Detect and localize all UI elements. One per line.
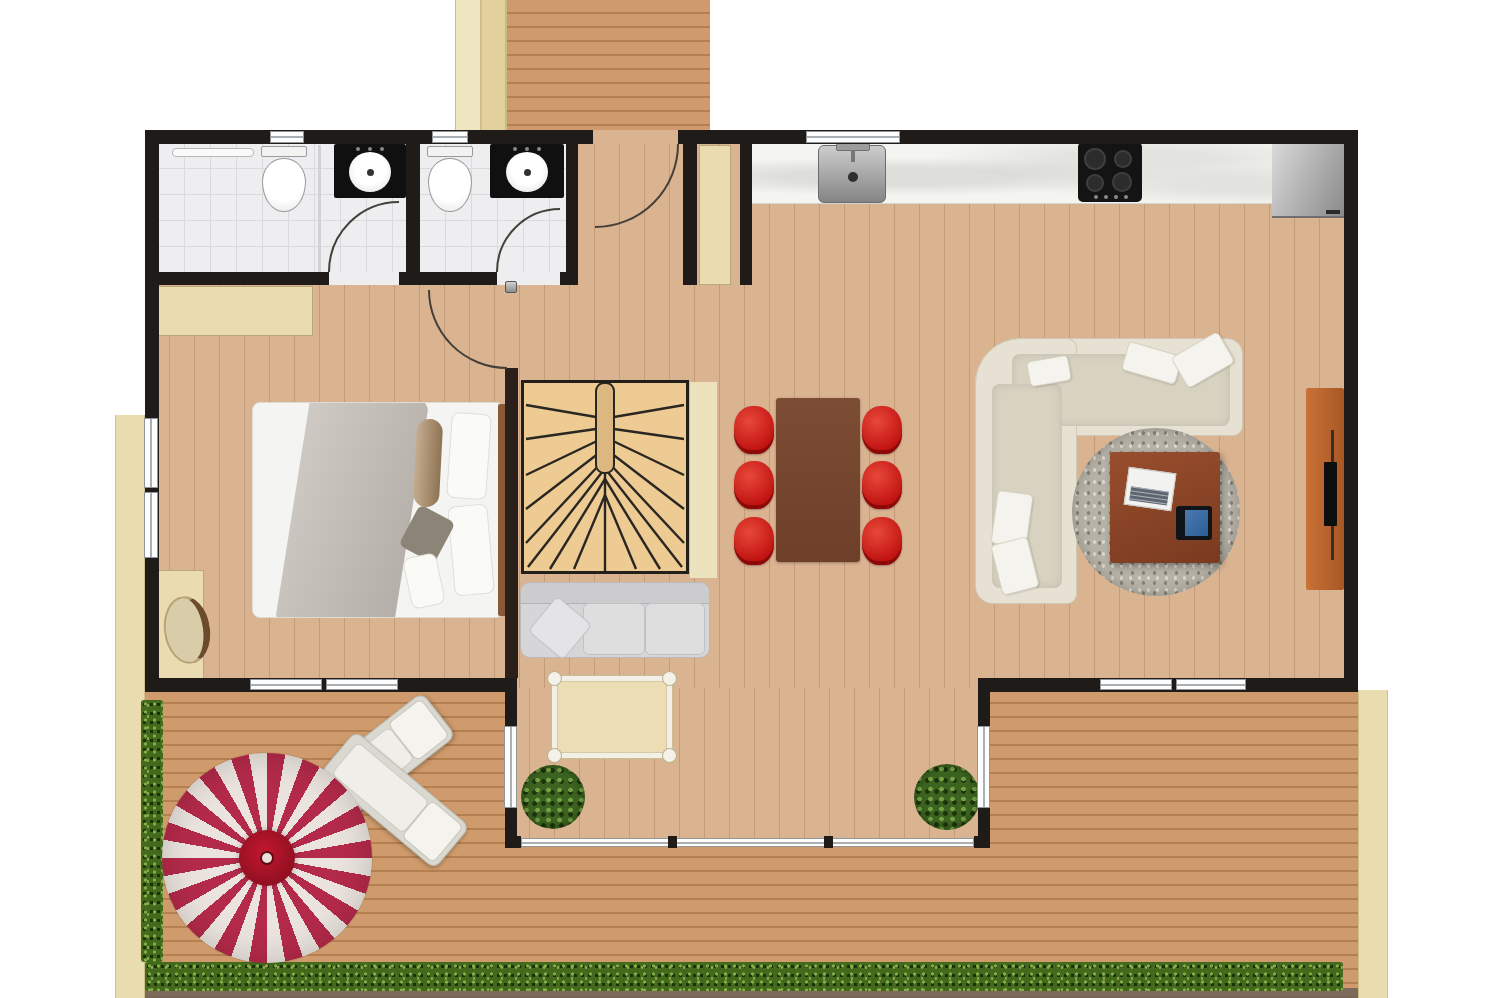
bedroom-door-arc	[429, 290, 507, 368]
bathroom-2-door-arc	[497, 209, 560, 272]
bathroom-1-door-arc	[329, 202, 399, 272]
door-swing-arcs	[0, 0, 1500, 998]
floor-plan-canvas	[0, 0, 1500, 998]
front-door-arc	[595, 144, 678, 227]
